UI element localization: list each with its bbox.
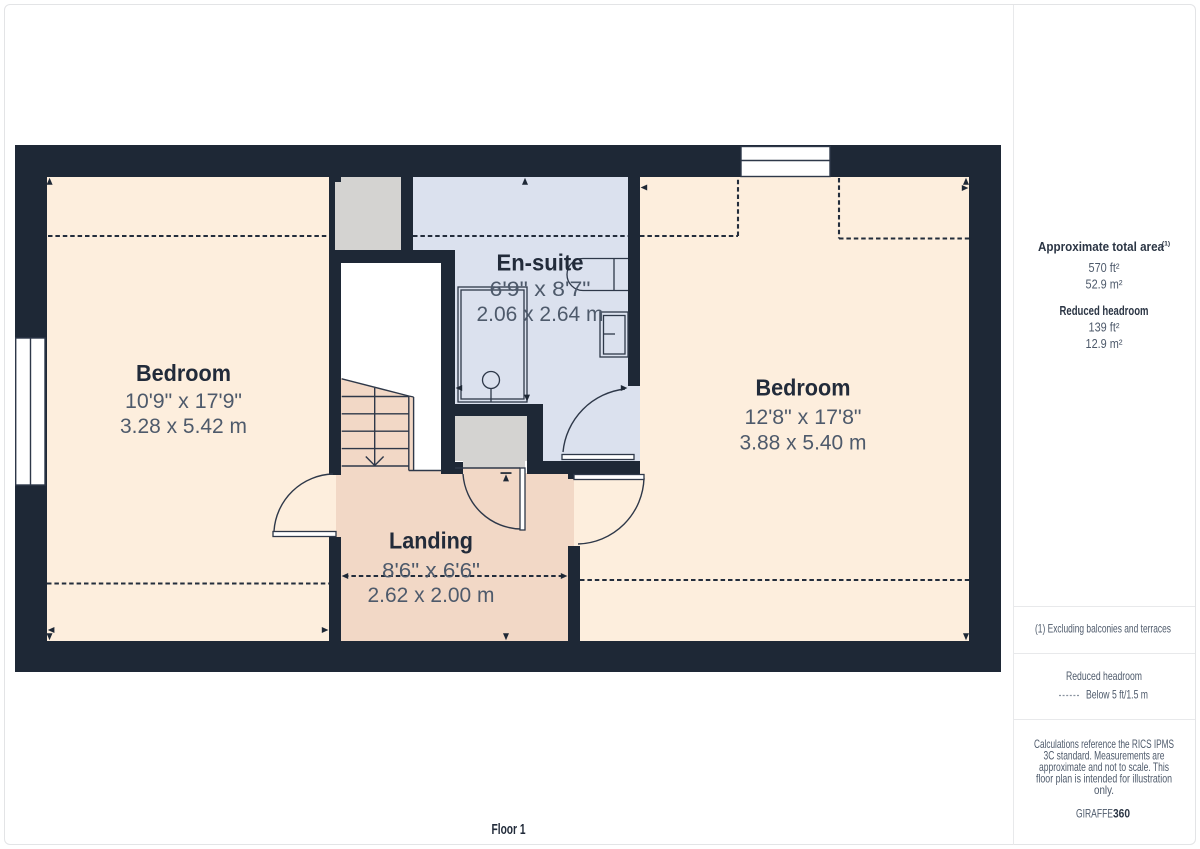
svg-text:En-suite: En-suite <box>497 250 584 276</box>
svg-text:8'6" x 6'6": 8'6" x 6'6" <box>382 560 480 583</box>
svg-text:3.28 x 5.42 m: 3.28 x 5.42 m <box>120 415 247 438</box>
svg-text:Bedroom: Bedroom <box>136 360 231 386</box>
svg-text:12.9 m²: 12.9 m² <box>1086 336 1124 351</box>
svg-text:Approximate total area: Approximate total area <box>1038 239 1165 254</box>
svg-text:Bedroom: Bedroom <box>756 375 851 401</box>
svg-text:52.9 m²: 52.9 m² <box>1086 277 1124 292</box>
svg-text:2.62 x 2.00 m: 2.62 x 2.00 m <box>368 584 495 607</box>
svg-text:GIRAFFE360: GIRAFFE360 <box>1076 809 1130 821</box>
svg-text:3.88 x 5.40 m: 3.88 x 5.40 m <box>740 432 867 455</box>
svg-text:6'9" x 8'7": 6'9" x 8'7" <box>490 278 591 301</box>
svg-text:139 ft²: 139 ft² <box>1089 320 1121 335</box>
svg-text:Floor 1: Floor 1 <box>492 822 526 838</box>
svg-text:Below 5 ft/1.5 m: Below 5 ft/1.5 m <box>1086 688 1148 702</box>
svg-text:(1): (1) <box>1162 241 1170 248</box>
svg-text:only.: only. <box>1094 783 1114 797</box>
svg-text:Reduced headroom: Reduced headroom <box>1066 669 1142 683</box>
svg-text:570 ft²: 570 ft² <box>1089 260 1121 275</box>
svg-text:12'8" x 17'8": 12'8" x 17'8" <box>745 406 862 429</box>
svg-text:(1) Excluding balconies and te: (1) Excluding balconies and terraces <box>1035 622 1171 636</box>
svg-text:Reduced headroom: Reduced headroom <box>1060 304 1149 318</box>
svg-text:2.06 x 2.64 m: 2.06 x 2.64 m <box>477 303 604 326</box>
svg-text:Landing: Landing <box>389 528 473 554</box>
svg-text:10'9" x 17'9": 10'9" x 17'9" <box>125 390 242 413</box>
